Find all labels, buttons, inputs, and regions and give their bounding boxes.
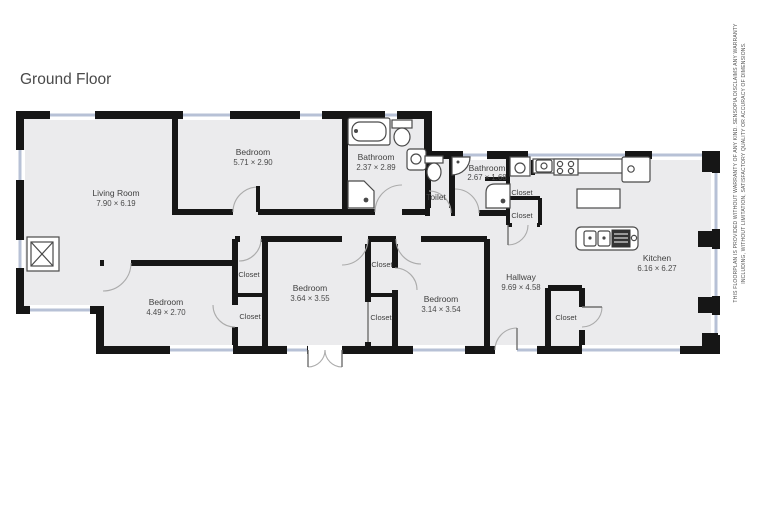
room-label-bedroom-left: Bedroom xyxy=(149,297,184,307)
room-dims-living-room: 7.90 × 6.19 xyxy=(96,199,135,208)
room-dims-bedroom-middle: 3.64 × 3.55 xyxy=(290,294,330,303)
room-label-living-room: Living Room xyxy=(92,188,139,198)
room-dims-bedroom-top: 5.71 × 2.90 xyxy=(233,158,273,167)
floorplan-page: Ground Floor xyxy=(0,0,768,512)
room-dims-bedroom-left: 4.49 × 2.70 xyxy=(146,308,186,317)
room-label-bedroom-top: Bedroom xyxy=(236,147,271,157)
page-title: Ground Floor xyxy=(20,71,111,88)
island-sink-stove xyxy=(576,227,638,250)
kitchen-counter xyxy=(533,159,625,175)
shower-small-icon xyxy=(486,184,510,208)
closet-label: Closet xyxy=(511,188,533,197)
room-label-bathroom-small: Bathroom xyxy=(469,163,506,173)
sink-icon xyxy=(407,149,426,170)
closet-label: Closet xyxy=(371,260,393,269)
room-label-toilet: Toilet xyxy=(426,192,446,202)
room-label-kitchen: Kitchen xyxy=(643,253,672,263)
closet-label: Closet xyxy=(555,313,577,322)
disclaimer-line-2: INCLUDING, WITHOUT LIMITATION, SATISFACT… xyxy=(741,42,747,283)
room-label-bedroom-right: Bedroom xyxy=(424,294,459,304)
room-dims-bathroom-main: 2.37 × 2.89 xyxy=(356,163,395,172)
toilet-icon xyxy=(392,120,412,146)
room-label-bedroom-middle: Bedroom xyxy=(293,283,328,293)
kitchen-island xyxy=(577,189,620,208)
room-label-bathroom-main: Bathroom xyxy=(358,152,395,162)
disclaimer-text: THIS FLOORPLAN IS PROVIDED WITHOUT WARRA… xyxy=(733,23,747,303)
room-dims-bedroom-right: 3.14 × 3.54 xyxy=(421,305,461,314)
room-dims-kitchen: 6.16 × 6.27 xyxy=(637,264,676,273)
toilet-small-icon xyxy=(425,156,443,181)
closet-label: Closet xyxy=(370,313,392,322)
floorplan-canvas: Ground Floor xyxy=(0,0,768,512)
closet-label: Closet xyxy=(511,211,533,220)
washer-icon xyxy=(510,157,530,176)
bathtub-icon xyxy=(348,118,390,145)
room-label-hallway: Hallway xyxy=(506,272,537,282)
fridge-icon xyxy=(622,157,650,182)
closet-label: Closet xyxy=(239,312,261,321)
disclaimer-line-1: THIS FLOORPLAN IS PROVIDED WITHOUT WARRA… xyxy=(733,23,739,303)
room-dims-bathroom-small: 2.67 × 1.68 xyxy=(467,173,506,182)
fireplace-icon xyxy=(27,237,59,271)
room-dims-hallway: 9.69 × 4.58 xyxy=(501,283,540,292)
closet-label: Closet xyxy=(238,270,260,279)
